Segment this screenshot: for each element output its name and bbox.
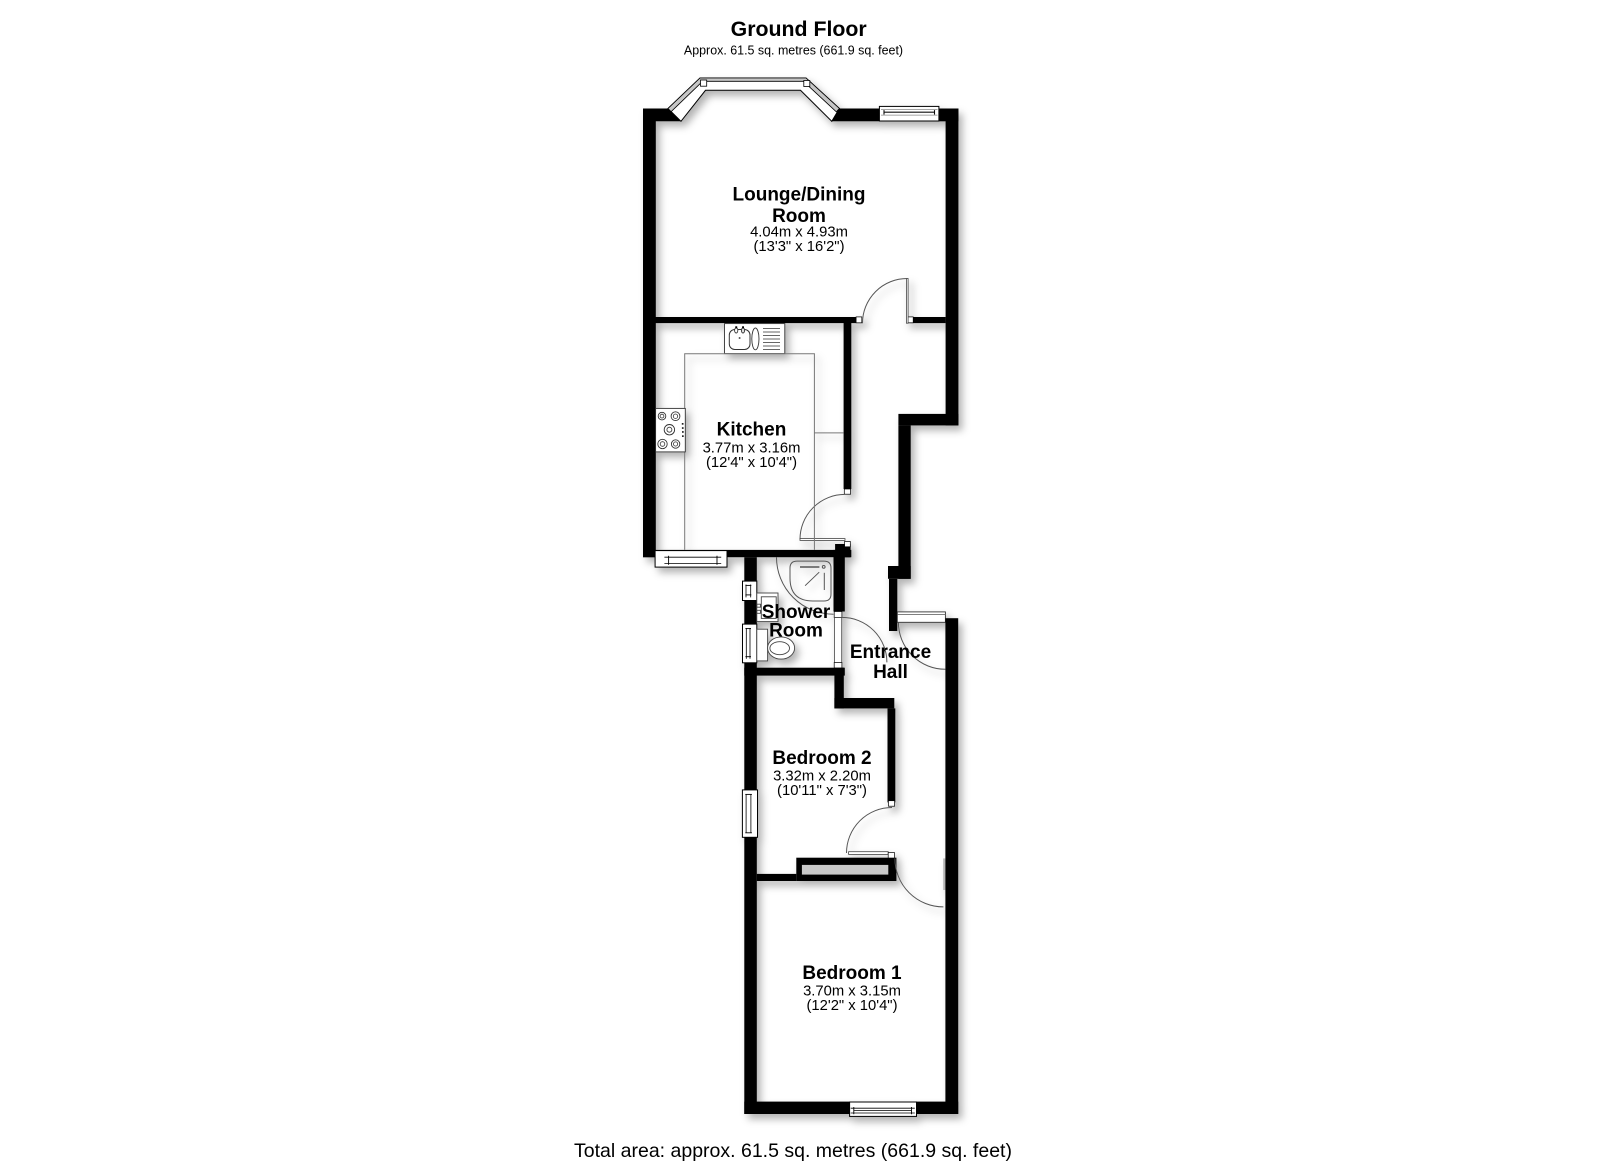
svg-text:3.77m x 3.16m: 3.77m x 3.16m — [703, 440, 801, 456]
svg-text:Ground Floor: Ground Floor — [731, 17, 867, 41]
svg-text:(12'2" x 10'4"): (12'2" x 10'4") — [806, 998, 897, 1014]
svg-text:4.04m x 4.93m: 4.04m x 4.93m — [750, 224, 848, 240]
svg-text:(10'11" x 7'3"): (10'11" x 7'3") — [777, 783, 867, 799]
svg-text:Kitchen: Kitchen — [717, 420, 787, 441]
svg-text:Entrance: Entrance — [850, 642, 931, 663]
svg-text:3.70m x 3.15m: 3.70m x 3.15m — [803, 984, 901, 1000]
svg-text:Approx. 61.5 sq. metres (661.9: Approx. 61.5 sq. metres (661.9 sq. feet) — [684, 43, 903, 57]
svg-text:Bedroom 1: Bedroom 1 — [802, 963, 902, 984]
svg-text:Hall: Hall — [873, 662, 908, 683]
svg-text:Bedroom 2: Bedroom 2 — [772, 748, 871, 769]
svg-text:(12'4" x 10'4"): (12'4" x 10'4") — [706, 455, 797, 471]
svg-text:Lounge/Dining: Lounge/Dining — [733, 184, 866, 205]
svg-text:Total area: approx. 61.5 sq. m: Total area: approx. 61.5 sq. metres (661… — [574, 1140, 1012, 1162]
svg-text:(13'3" x 16'2"): (13'3" x 16'2") — [753, 239, 844, 255]
svg-text:Room: Room — [769, 621, 823, 642]
